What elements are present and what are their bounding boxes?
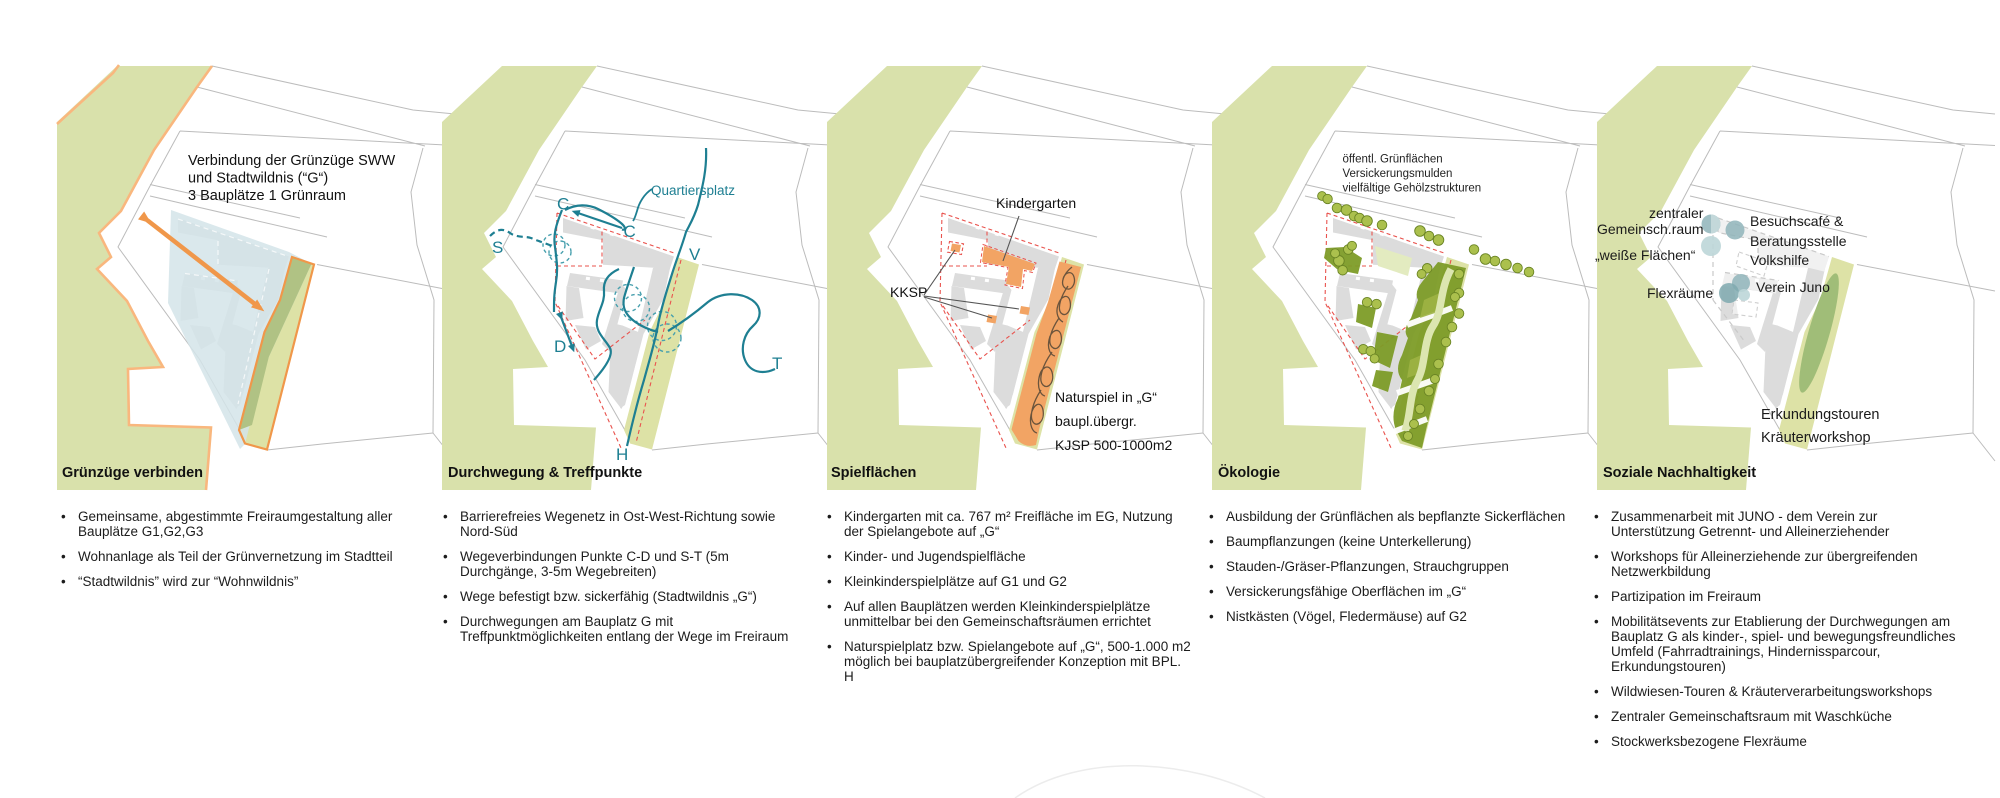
svg-text:Kräuterworkshop: Kräuterworkshop bbox=[1761, 430, 1871, 446]
svg-text:S: S bbox=[492, 238, 503, 257]
svg-text:KJSP 500-1000m2: KJSP 500-1000m2 bbox=[1055, 437, 1172, 453]
svg-text:Quartiersplatz: Quartiersplatz bbox=[651, 183, 735, 198]
svg-text:Verein Juno: Verein Juno bbox=[1756, 279, 1830, 295]
svg-text:Erkundungstouren: Erkundungstouren bbox=[1761, 407, 1880, 423]
svg-text:Versickerungsmulden: Versickerungsmulden bbox=[1343, 168, 1453, 180]
svg-text:und Stadtwildnis (“G“): und Stadtwildnis (“G“) bbox=[188, 171, 328, 187]
svg-text:T: T bbox=[772, 354, 782, 373]
svg-text:Kindergarten: Kindergarten bbox=[996, 195, 1076, 211]
svg-text:Beratungsstelle: Beratungsstelle bbox=[1750, 233, 1847, 249]
svg-text:Naturspiel in „G“: Naturspiel in „G“ bbox=[1055, 389, 1157, 405]
svg-text:3 Bauplätze 1 Grünraum: 3 Bauplätze 1 Grünraum bbox=[188, 188, 346, 204]
svg-text:Flexräume: Flexräume bbox=[1647, 285, 1713, 301]
svg-text:Besuchscafé &: Besuchscafé & bbox=[1750, 213, 1844, 229]
svg-text:Volkshilfe: Volkshilfe bbox=[1750, 252, 1809, 268]
svg-text:KKSP: KKSP bbox=[890, 284, 927, 300]
svg-text:D: D bbox=[554, 337, 566, 356]
svg-text:Verbindung der Grünzüge SWW: Verbindung der Grünzüge SWW bbox=[188, 153, 395, 169]
svg-text:„weiße Flächen“: „weiße Flächen“ bbox=[1595, 247, 1696, 263]
svg-text:C: C bbox=[624, 222, 636, 241]
svg-text:Gemeinsch.raum: Gemeinsch.raum bbox=[1597, 221, 1704, 237]
svg-text:zentraler: zentraler bbox=[1649, 205, 1704, 221]
svg-text:vielfältige Gehölzstrukturen: vielfältige Gehölzstrukturen bbox=[1343, 182, 1482, 194]
svg-text:C: C bbox=[557, 195, 569, 214]
svg-text:baupl.übergr.: baupl.übergr. bbox=[1055, 413, 1137, 429]
svg-text:öffentl. Grünflächen: öffentl. Grünflächen bbox=[1343, 154, 1443, 166]
svg-text:V: V bbox=[689, 245, 701, 264]
svg-text:H: H bbox=[616, 445, 628, 464]
